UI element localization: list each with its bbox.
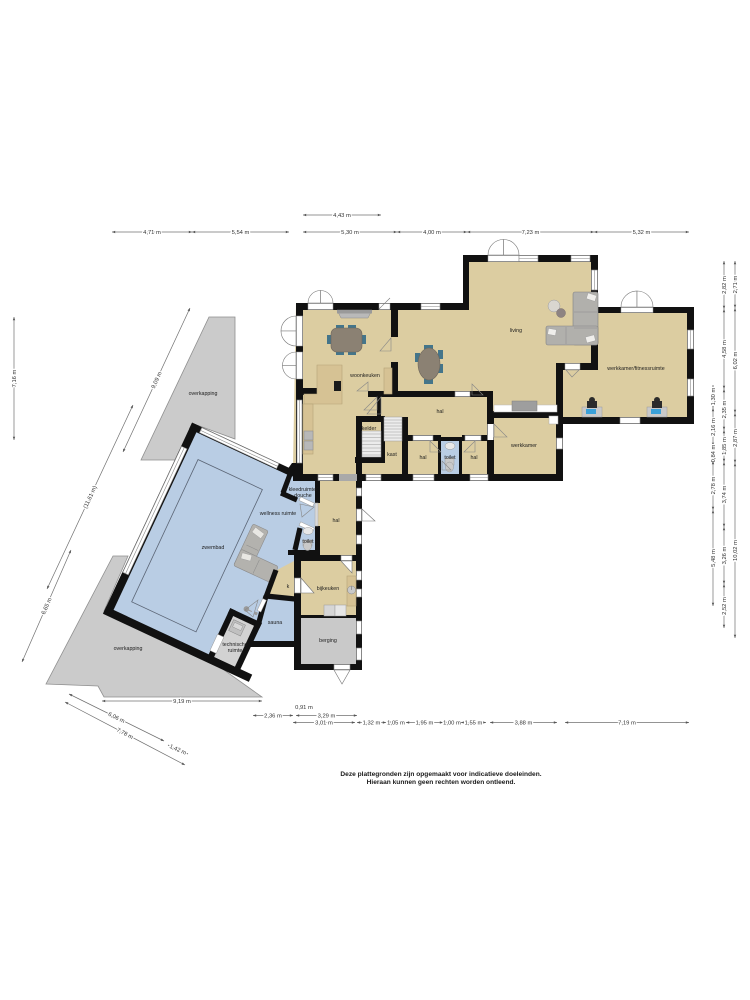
svg-text:toilet: toilet	[302, 539, 314, 545]
svg-text:4,58 m: 4,58 m	[722, 340, 728, 358]
svg-text:kast: kast	[387, 452, 397, 458]
svg-text:wellness ruimte: wellness ruimte	[260, 511, 297, 517]
svg-text:1,00 m: 1,00 m	[443, 720, 461, 726]
svg-text:3,01 m: 3,01 m	[315, 720, 333, 726]
svg-text:berging: berging	[319, 638, 337, 644]
svg-text:1,55 m: 1,55 m	[465, 720, 483, 726]
svg-text:werkkamer: werkkamer	[511, 443, 537, 449]
svg-text:2,52 m: 2,52 m	[722, 597, 728, 615]
svg-text:hal: hal	[470, 455, 477, 461]
svg-text:ruimte: ruimte	[228, 648, 243, 654]
svg-text:hal: hal	[436, 409, 443, 415]
svg-text:2,71 m: 2,71 m	[733, 275, 739, 293]
svg-text:douche: douche	[294, 493, 311, 499]
svg-text:0,84 m: 0,84 m	[711, 444, 717, 462]
svg-text:hal: hal	[419, 455, 426, 461]
svg-text:Deze plattegronden zijn opgema: Deze plattegronden zijn opgemaakt voor i…	[340, 771, 541, 778]
svg-text:woonkeuken: woonkeuken	[350, 373, 380, 379]
svg-text:zwembad: zwembad	[202, 545, 225, 551]
svg-text:sauna: sauna	[268, 620, 282, 626]
svg-text:toilet: toilet	[444, 455, 456, 461]
svg-text:k: k	[287, 584, 290, 590]
svg-text:2,87 m: 2,87 m	[733, 429, 739, 447]
svg-text:7,16 m: 7,16 m	[12, 369, 18, 387]
svg-text:5,48 m: 5,48 m	[711, 549, 717, 567]
svg-text:hal: hal	[332, 518, 339, 524]
svg-text:4,43 m: 4,43 m	[333, 213, 351, 219]
svg-text:4,71 m: 4,71 m	[143, 230, 161, 236]
svg-text:3,26 m: 3,26 m	[722, 546, 728, 564]
svg-text:overkapping: overkapping	[189, 391, 218, 397]
svg-text:1,30 m: 1,30 m	[711, 387, 717, 405]
svg-text:overkapping: overkapping	[114, 646, 143, 652]
svg-text:7,23 m: 7,23 m	[522, 230, 540, 236]
svg-text:10,02 m: 10,02 m	[733, 540, 739, 561]
svg-text:2,36 m: 2,36 m	[264, 713, 282, 719]
svg-text:5,30 m: 5,30 m	[341, 230, 359, 236]
svg-text:4,00 m: 4,00 m	[423, 230, 441, 236]
svg-text:3,29 m: 3,29 m	[318, 713, 336, 719]
svg-text:5,32 m: 5,32 m	[633, 230, 651, 236]
svg-text:kelder: kelder	[362, 426, 377, 432]
svg-text:1,05 m: 1,05 m	[387, 720, 405, 726]
svg-text:5,54 m: 5,54 m	[232, 230, 250, 236]
svg-text:2,78 m: 2,78 m	[711, 476, 717, 494]
svg-text:werkkamer/fitnessruimte: werkkamer/fitnessruimte	[607, 366, 664, 372]
svg-text:9,19 m: 9,19 m	[173, 699, 191, 705]
svg-text:Hieraan kunnen geen rechten wo: Hieraan kunnen geen rechten worden ontle…	[367, 779, 516, 786]
svg-text:bijkeuken: bijkeuken	[317, 586, 339, 592]
svg-text:6,02 m: 6,02 m	[733, 351, 739, 369]
svg-text:1,85 m: 1,85 m	[722, 437, 728, 455]
svg-text:7,19 m: 7,19 m	[618, 720, 636, 726]
svg-text:2,82 m: 2,82 m	[722, 276, 728, 294]
svg-text:0,91 m: 0,91 m	[295, 705, 313, 711]
svg-text:living: living	[510, 328, 522, 334]
svg-text:1,32 m: 1,32 m	[363, 720, 381, 726]
svg-text:1,95 m: 1,95 m	[416, 720, 434, 726]
svg-text:2,16 m: 2,16 m	[711, 418, 717, 436]
svg-text:3,88 m: 3,88 m	[515, 720, 533, 726]
svg-text:3,74 m: 3,74 m	[722, 485, 728, 503]
svg-text:2,35 m: 2,35 m	[722, 400, 728, 418]
